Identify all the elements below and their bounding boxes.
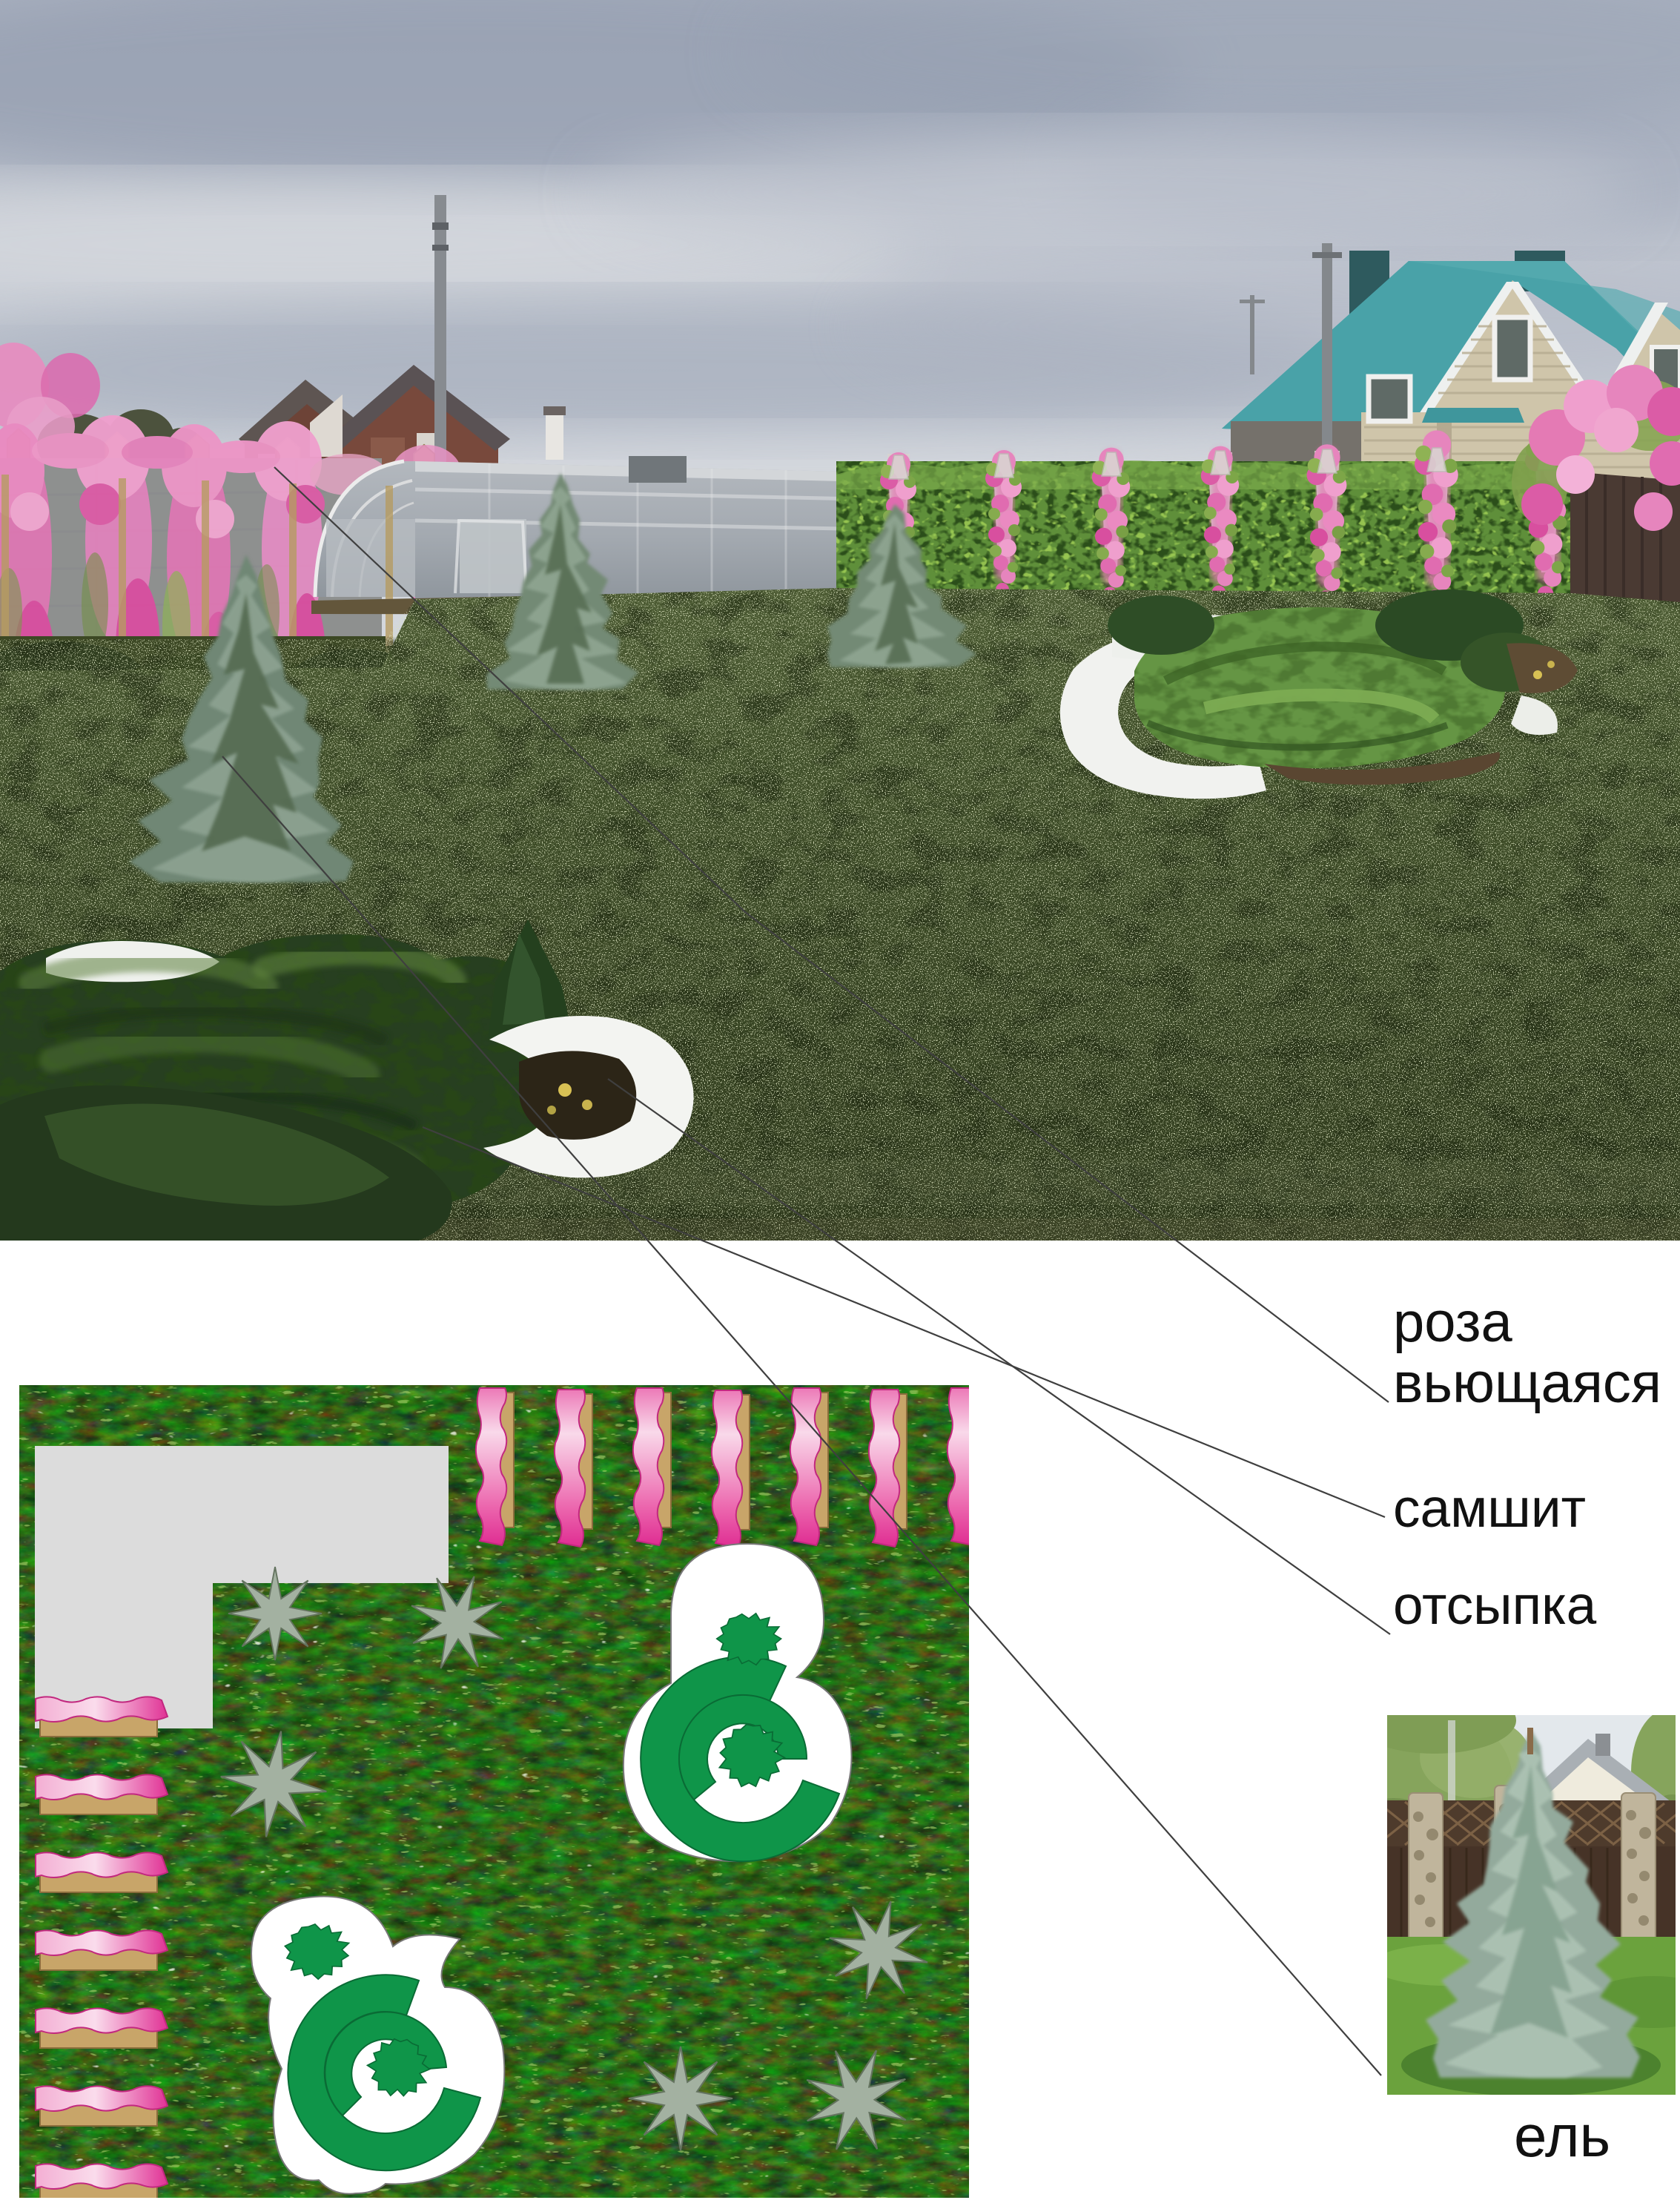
svg-text:отсыпка: отсыпка (1393, 1576, 1597, 1636)
svg-text:самшит: самшит (1393, 1479, 1586, 1539)
svg-text:роза: роза (1393, 1291, 1513, 1354)
svg-text:вьющаяся: вьющаяся (1393, 1352, 1661, 1415)
svg-text:ель: ель (1514, 2103, 1610, 2169)
